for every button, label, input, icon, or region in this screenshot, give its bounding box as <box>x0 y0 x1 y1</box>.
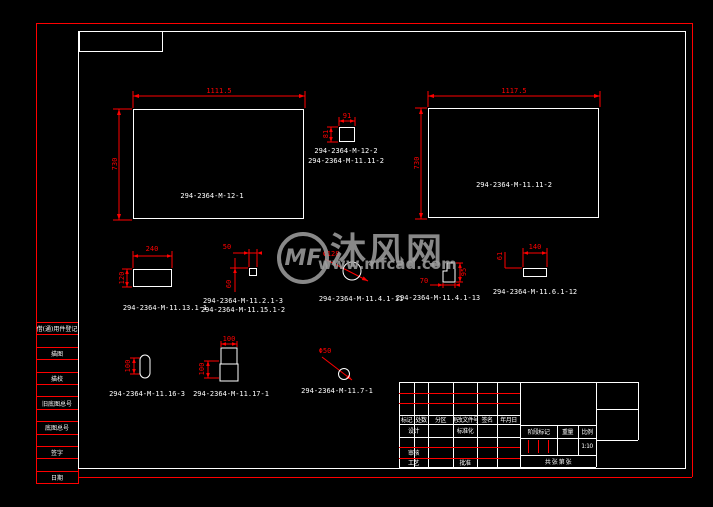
grid-line <box>596 409 638 410</box>
grid-line <box>399 467 596 468</box>
dimension-arrows <box>117 94 600 380</box>
tb-design-label: 设计 <box>399 424 428 437</box>
grid-line <box>497 382 498 467</box>
part-label: 294-2364-M-12-2 <box>296 147 396 155</box>
dim-text: 730 <box>413 151 421 175</box>
tb-scale-value: 1:10 <box>578 438 596 455</box>
grid-line <box>399 382 638 383</box>
tb-weight-label: 重量 <box>557 425 578 438</box>
dim-text: 1117.5 <box>490 87 538 95</box>
capsule-outline <box>140 355 150 378</box>
tb-count-label: 处数 <box>414 415 428 424</box>
part-label: 294-2364-M-11.7-1 <box>287 387 387 395</box>
part-label: 294-2364-M-11.11-2 <box>464 181 564 189</box>
dim-text: 120 <box>118 266 126 290</box>
part-label: 294-2364-M-12-1 <box>162 192 262 200</box>
part-label: 294-2364-M-11.15.1-2 <box>193 306 293 314</box>
stage-tick <box>528 440 529 453</box>
dim-text: 95 <box>460 262 468 282</box>
dim-text: Φ128 <box>312 250 350 258</box>
dim-text: 100 <box>198 357 206 381</box>
tb-zone-label: 分区 <box>428 415 453 424</box>
part-label: 294-2364-M-11.11-2 <box>296 157 396 165</box>
stage-tick <box>538 440 539 453</box>
dim-text: 91 <box>335 112 359 120</box>
part-label: 294-2364-M-11.2.1-3 <box>193 297 293 305</box>
dim-text: 61 <box>496 246 504 266</box>
tb-scale-label: 比例 <box>578 425 596 438</box>
dim-text: 240 <box>134 245 170 253</box>
grid-line <box>477 382 478 467</box>
stage-tick <box>548 440 549 453</box>
grid-line-red <box>399 393 520 394</box>
disc-outline <box>343 262 361 280</box>
tb-standardization-label: 标准化 <box>453 424 477 437</box>
dim-text: Φ50 <box>305 347 345 355</box>
dim-text: 1111.5 <box>195 87 243 95</box>
tb-stage-label: 阶段标记 <box>520 425 557 438</box>
dimension-layer <box>0 0 713 507</box>
corner-block-top-outline <box>221 348 237 364</box>
grid-line-red <box>399 403 520 404</box>
corner-block-bottom-outline <box>220 364 238 381</box>
dim-text: 100 <box>124 354 132 378</box>
tb-date-label: 年月日 <box>497 415 520 424</box>
dim-text: 70 <box>410 277 438 285</box>
step-block-outline <box>443 263 455 282</box>
tb-mark-label: 标记 <box>399 415 414 424</box>
tb-sign-label: 签名 <box>477 415 497 424</box>
part-label: 294-2364-M-11.6.1-12 <box>485 288 585 296</box>
dim-text: 81 <box>322 124 330 144</box>
dim-text: 100 <box>211 335 247 343</box>
part-label: 294-2364-M-11.17-1 <box>181 390 281 398</box>
tb-process-label: 工艺 <box>399 458 428 467</box>
grid-line <box>428 382 429 467</box>
dimension-lines <box>113 91 600 380</box>
grid-line <box>596 440 638 441</box>
tb-approve-label: 批准 <box>453 458 477 467</box>
tb-check-label: 审核 <box>399 447 428 458</box>
part-label: 294-2364-M-11.4.1-13 <box>388 294 488 302</box>
dim-text: 60 <box>225 274 233 294</box>
tb-docno-label: 更改文件号 <box>453 415 477 424</box>
dim-text: 730 <box>111 152 119 176</box>
grid-line <box>596 382 597 467</box>
grid-line <box>399 437 520 438</box>
dim-text: 140 <box>517 243 553 251</box>
tb-sheet-note: 共 张 第 张 <box>520 455 596 467</box>
dim-text: 50 <box>213 243 241 251</box>
cad-drawing-sheet: 借(通)用件登记 描图 描校 旧底图总号 底图总号 签字 日期 <box>0 0 713 507</box>
grid-line <box>638 382 639 440</box>
part-shapes <box>140 262 455 381</box>
